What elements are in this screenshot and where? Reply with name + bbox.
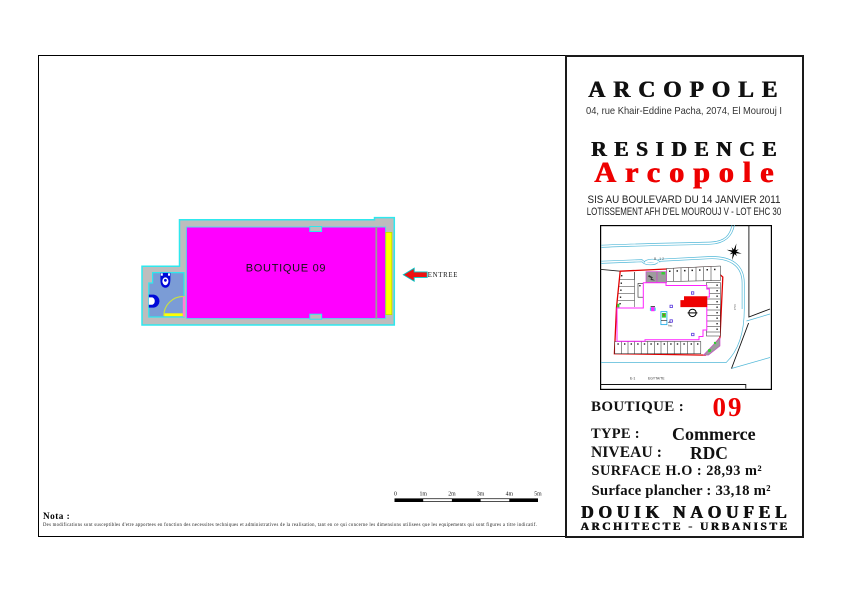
svg-text:BOUTIQUE 09: BOUTIQUE 09 — [246, 262, 326, 274]
svg-text:EGYTA/TE: EGYTA/TE — [648, 376, 665, 380]
svg-text:ENTREE: ENTREE — [428, 272, 458, 279]
svg-text:1m: 1m — [419, 492, 427, 498]
svg-text:E-1: E-1 — [630, 376, 635, 380]
svg-text:Asc: Asc — [668, 323, 673, 327]
svg-text:B.12: B.12 — [654, 256, 665, 260]
svg-text:3m: 3m — [477, 492, 485, 498]
svg-text:2m: 2m — [448, 492, 456, 498]
svg-text:R+2: R+2 — [733, 304, 737, 310]
svg-text:5m: 5m — [534, 492, 542, 498]
svg-text:4m: 4m — [506, 492, 514, 498]
svg-text:0: 0 — [394, 492, 397, 498]
